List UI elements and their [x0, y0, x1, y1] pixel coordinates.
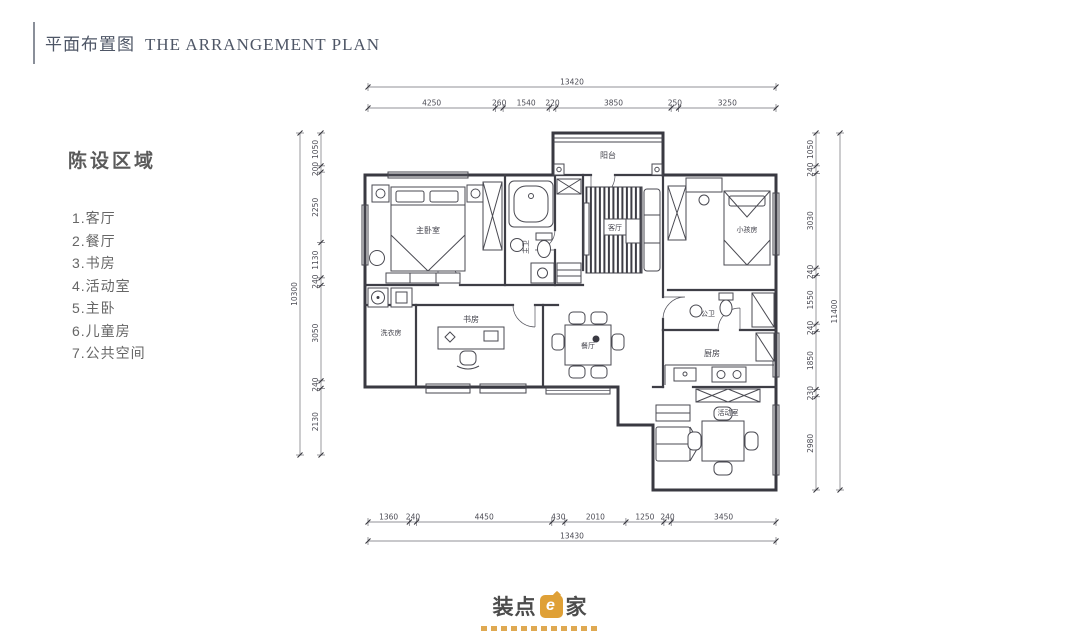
- floor-plan-svg: 主卧室 主卫 阳台 客厅 小孩房 公卫 厨房 餐厅 书房 洗衣房 活动室 134…: [288, 75, 863, 553]
- room-label-kids-room: 小孩房: [737, 225, 758, 234]
- master-bath-fixtures: [509, 181, 554, 283]
- logo-text-right: 家: [566, 591, 588, 621]
- svg-text:3030: 3030: [806, 211, 815, 230]
- room-label-public-bath: 公卫: [701, 310, 715, 318]
- legend-item-dining: 2.餐厅: [72, 230, 156, 253]
- svg-text:230: 230: [806, 386, 815, 401]
- room-label-master-bath: 主卫: [521, 240, 530, 254]
- svg-text:2130: 2130: [311, 412, 320, 431]
- logo-e-house-icon: e: [540, 595, 563, 618]
- legend-item-activity: 4.活动室: [72, 275, 156, 298]
- svg-text:11400: 11400: [830, 299, 839, 323]
- legend-item-living: 1.客厅: [72, 207, 156, 230]
- logo: 装点 e 家: [0, 591, 1080, 631]
- svg-text:430: 430: [551, 513, 566, 522]
- study-furniture: [438, 327, 504, 369]
- svg-text:2250: 2250: [311, 198, 320, 217]
- logo-text-left: 装点: [493, 591, 537, 621]
- svg-text:3850: 3850: [604, 99, 623, 108]
- svg-text:3050: 3050: [311, 323, 320, 342]
- title-accent-rule: [33, 22, 35, 64]
- page-title-zh: 平面布置图: [45, 35, 135, 54]
- svg-text:240: 240: [311, 274, 320, 289]
- room-label-dining: 餐厅: [581, 341, 595, 350]
- legend-item-public: 7.公共空间: [72, 342, 156, 365]
- legend-title: 陈设区域: [68, 146, 156, 173]
- legend-list: 1.客厅 2.餐厅 3.书房 4.活动室 5.主卧 6.儿童房 7.公共空间: [72, 207, 156, 365]
- svg-text:1050: 1050: [311, 140, 320, 159]
- svg-text:240: 240: [806, 321, 815, 336]
- svg-text:1850: 1850: [806, 351, 815, 370]
- page-title: 平面布置图THE ARRANGEMENT PLAN: [45, 30, 380, 55]
- svg-text:260: 260: [492, 99, 507, 108]
- legend-item-study: 3.书房: [72, 252, 156, 275]
- kitchen-fixtures: [665, 333, 774, 385]
- kids-room-furniture: [668, 178, 770, 265]
- page-title-en: THE ARRANGEMENT PLAN: [145, 35, 380, 54]
- svg-text:240: 240: [406, 513, 421, 522]
- svg-text:240: 240: [311, 377, 320, 392]
- room-label-master-bedroom: 主卧室: [416, 225, 440, 235]
- slide: 平面布置图THE ARRANGEMENT PLAN 陈设区域 1.客厅 2.餐厅…: [0, 0, 1080, 643]
- svg-text:240: 240: [806, 265, 815, 280]
- svg-text:4450: 4450: [475, 513, 494, 522]
- svg-text:250: 250: [668, 99, 683, 108]
- logo-row: 装点 e 家: [493, 591, 588, 621]
- svg-text:3250: 3250: [718, 99, 737, 108]
- svg-text:2010: 2010: [586, 513, 605, 522]
- legend-item-master: 5.主卧: [72, 297, 156, 320]
- svg-text:220: 220: [545, 99, 560, 108]
- svg-text:13420: 13420: [560, 78, 584, 87]
- svg-text:3450: 3450: [714, 513, 733, 522]
- svg-text:240: 240: [806, 162, 815, 177]
- room-label-living: 客厅: [608, 223, 622, 232]
- balcony-columns: [554, 164, 662, 175]
- svg-text:240: 240: [660, 513, 675, 522]
- room-label-kitchen: 厨房: [704, 348, 720, 358]
- logo-tagline: [481, 626, 599, 631]
- dimension-layer: 1342042502601540220385025032501360240445…: [290, 78, 844, 546]
- room-label-activity: 活动室: [718, 408, 739, 417]
- svg-text:1250: 1250: [635, 513, 654, 522]
- svg-text:10300: 10300: [290, 282, 299, 306]
- room-label-laundry: 洗衣房: [381, 328, 402, 337]
- svg-text:1550: 1550: [806, 290, 815, 309]
- svg-text:4250: 4250: [422, 99, 441, 108]
- svg-text:2980: 2980: [806, 434, 815, 453]
- public-bath-fixtures: [690, 293, 774, 327]
- svg-text:1540: 1540: [517, 99, 536, 108]
- logo-e-letter: e: [546, 597, 556, 615]
- legend-item-kids: 6.儿童房: [72, 320, 156, 343]
- svg-text:1050: 1050: [806, 140, 815, 159]
- svg-text:1360: 1360: [379, 513, 398, 522]
- svg-text:1130: 1130: [311, 250, 320, 269]
- room-label-study: 书房: [463, 314, 479, 324]
- living-room-furniture: [584, 187, 660, 273]
- svg-text:200: 200: [311, 162, 320, 177]
- master-wardrobe-icon: [483, 182, 502, 250]
- floor-plan: 主卧室 主卫 阳台 客厅 小孩房 公卫 厨房 餐厅 书房 洗衣房 活动室 134…: [288, 75, 863, 553]
- room-label-balcony: 阳台: [600, 150, 616, 160]
- svg-text:13430: 13430: [560, 532, 584, 541]
- entry-cabinets: [557, 179, 581, 283]
- legend-panel: 陈设区域 1.客厅 2.餐厅 3.书房 4.活动室 5.主卧 6.儿童房 7.公…: [68, 146, 156, 365]
- activity-room-furniture: [656, 389, 760, 475]
